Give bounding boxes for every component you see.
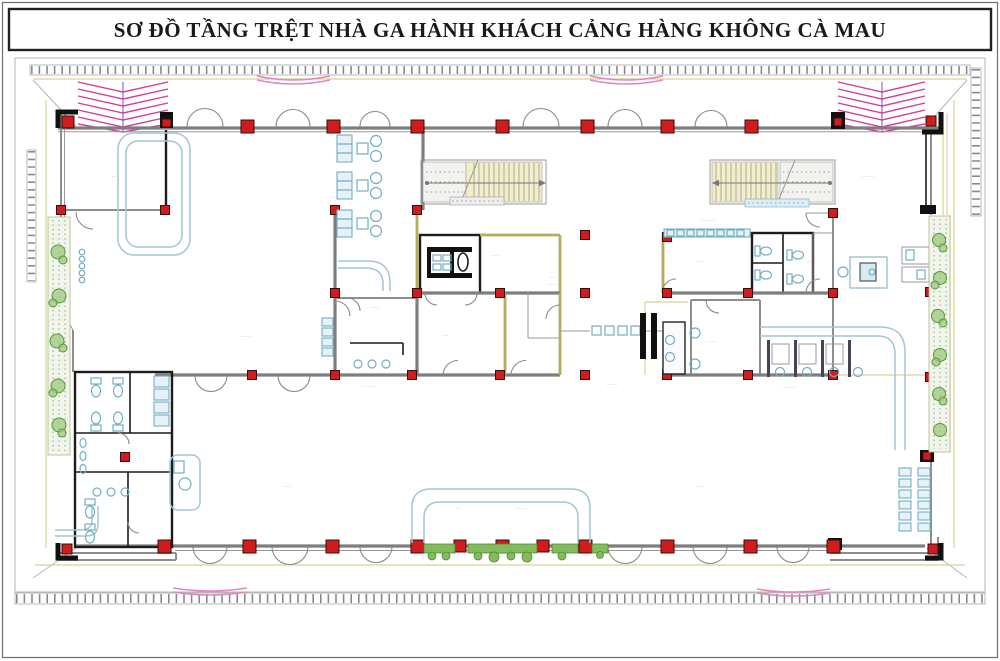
room-label: ····	[549, 275, 556, 281]
plant-strip-right	[929, 216, 950, 452]
room-label: ·····	[110, 174, 118, 180]
room-label: ·····	[368, 197, 376, 203]
room-label: ··········	[700, 218, 716, 224]
room-label: ···	[808, 259, 813, 265]
room-label: ·······	[240, 334, 252, 340]
room-label: ·······	[706, 339, 718, 345]
floor-plan-page: SƠ ĐỒ TẦNG TRỆT NHÀ GA HÀNH KHÁCH CẢNG H…	[0, 0, 1000, 661]
scanner-unit	[663, 322, 685, 374]
room-label: ······	[695, 259, 705, 265]
room-label: ·····	[442, 333, 450, 339]
room-label: ·····	[696, 484, 704, 490]
room-label: ·······	[606, 382, 618, 388]
room-label: ······	[547, 282, 557, 288]
room-label: ·····	[283, 484, 291, 490]
plant-strip-left	[48, 217, 70, 455]
room-label: ·········	[363, 384, 378, 390]
room-label: ······	[370, 305, 380, 311]
room-label: ·······	[515, 506, 527, 512]
floor-plan-drawing: SƠ ĐỒ TẦNG TRỆT NHÀ GA HÀNH KHÁCH CẢNG H…	[0, 0, 1000, 661]
room-label: ·····	[491, 253, 499, 259]
room-label: ·········	[782, 385, 797, 391]
room-label: ········	[862, 174, 875, 180]
title-block: SƠ ĐỒ TẦNG TRỆT NHÀ GA HÀNH KHÁCH CẢNG H…	[9, 9, 991, 50]
metal-detector	[640, 313, 646, 359]
page-title: SƠ ĐỒ TẦNG TRỆT NHÀ GA HÀNH KHÁCH CẢNG H…	[114, 18, 886, 42]
staircase-left	[421, 160, 546, 205]
room-label: ····	[455, 506, 462, 512]
staircase-right	[710, 160, 835, 207]
checkin-counter	[664, 229, 750, 237]
